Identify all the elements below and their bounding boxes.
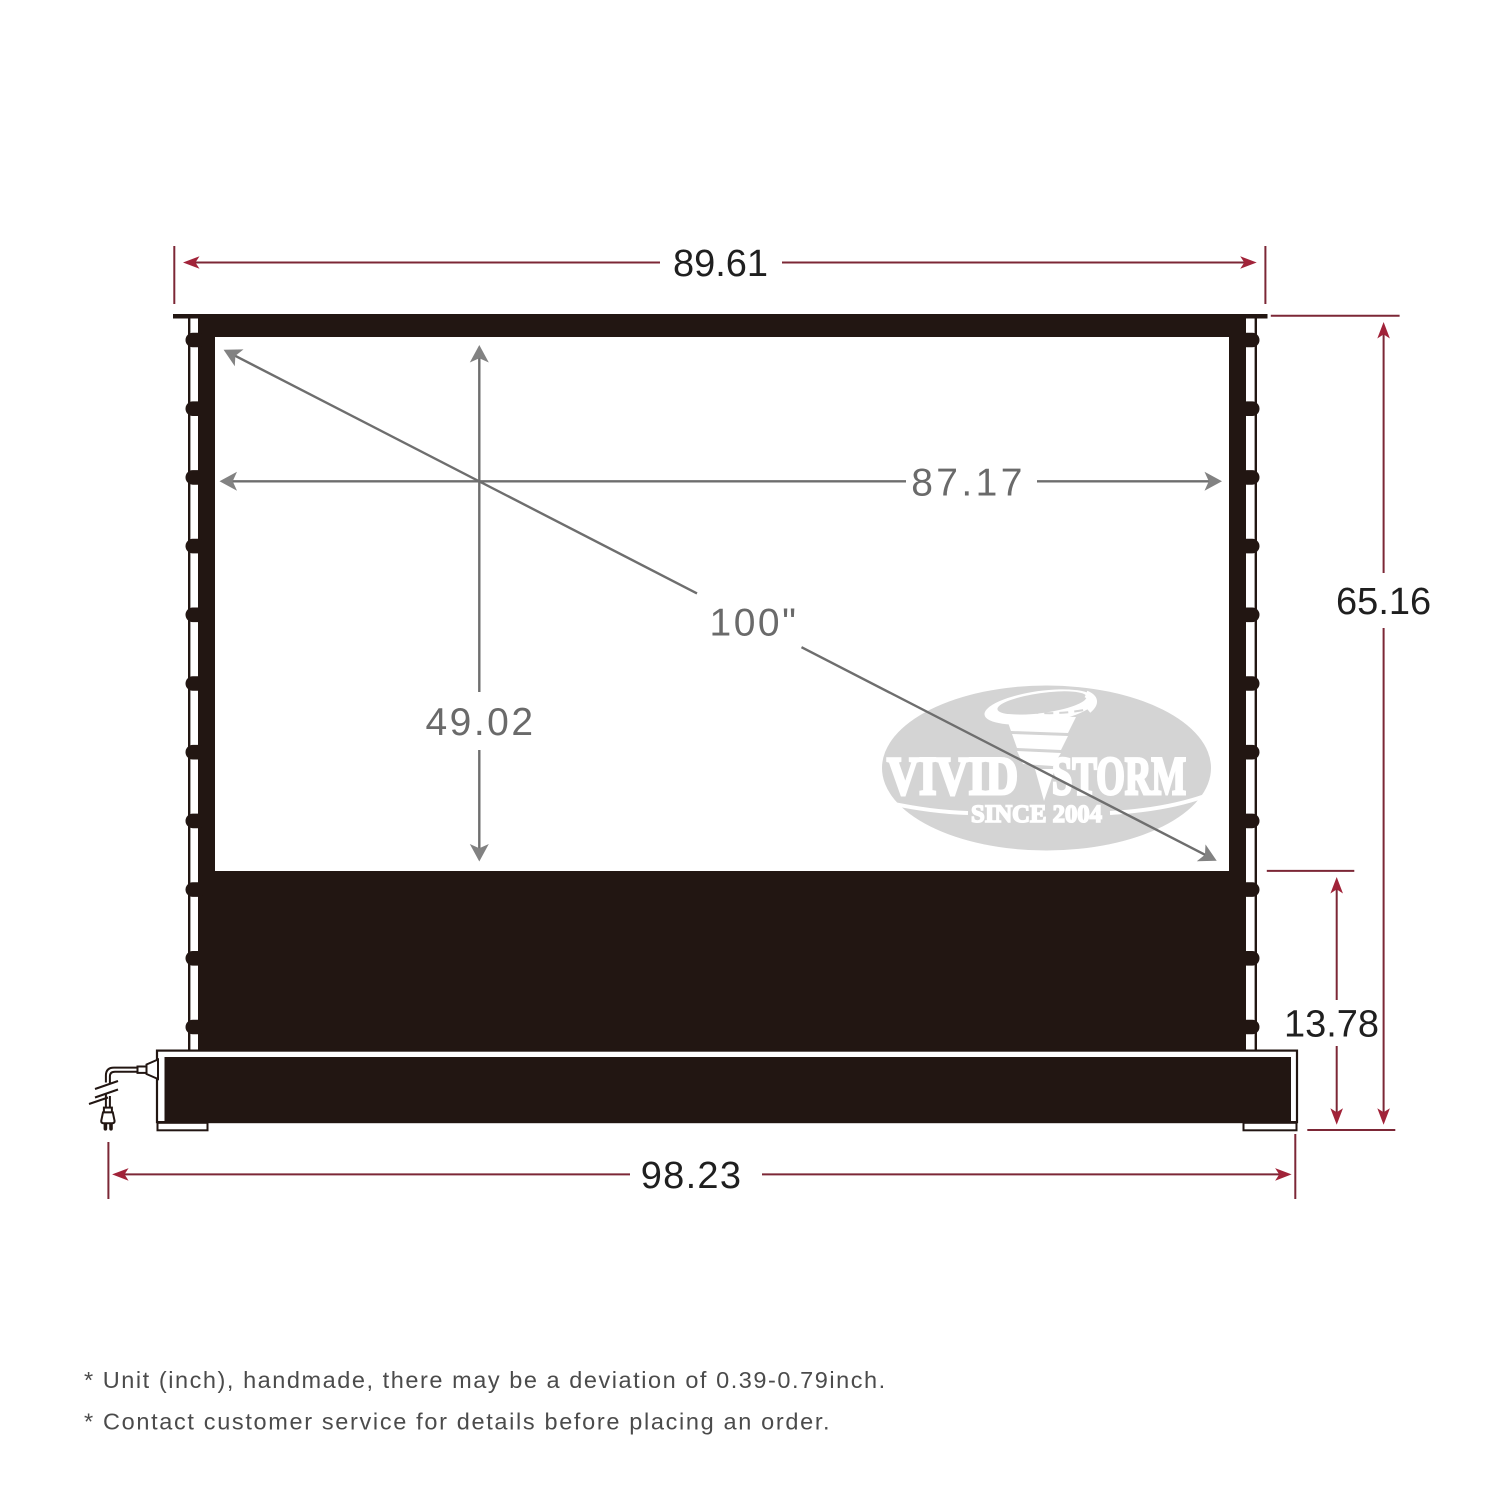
svg-text:89.61: 89.61	[673, 243, 768, 285]
svg-text:VIVID: VIVID	[887, 746, 1018, 806]
svg-text:65.16: 65.16	[1336, 581, 1431, 623]
svg-text:13.78: 13.78	[1284, 1004, 1379, 1046]
svg-text:STORM: STORM	[1052, 746, 1186, 806]
svg-text:98.23: 98.23	[641, 1155, 743, 1197]
svg-text:49.02: 49.02	[425, 701, 535, 744]
svg-text:* Unit (inch), handmade, there: * Unit (inch), handmade, there may be a …	[84, 1367, 887, 1393]
svg-text:100": 100"	[710, 602, 799, 645]
svg-text:SINCE 2004: SINCE 2004	[971, 801, 1102, 828]
svg-text:87.17: 87.17	[911, 461, 1026, 504]
svg-text:* Contact customer service for: * Contact customer service for details b…	[84, 1409, 831, 1435]
